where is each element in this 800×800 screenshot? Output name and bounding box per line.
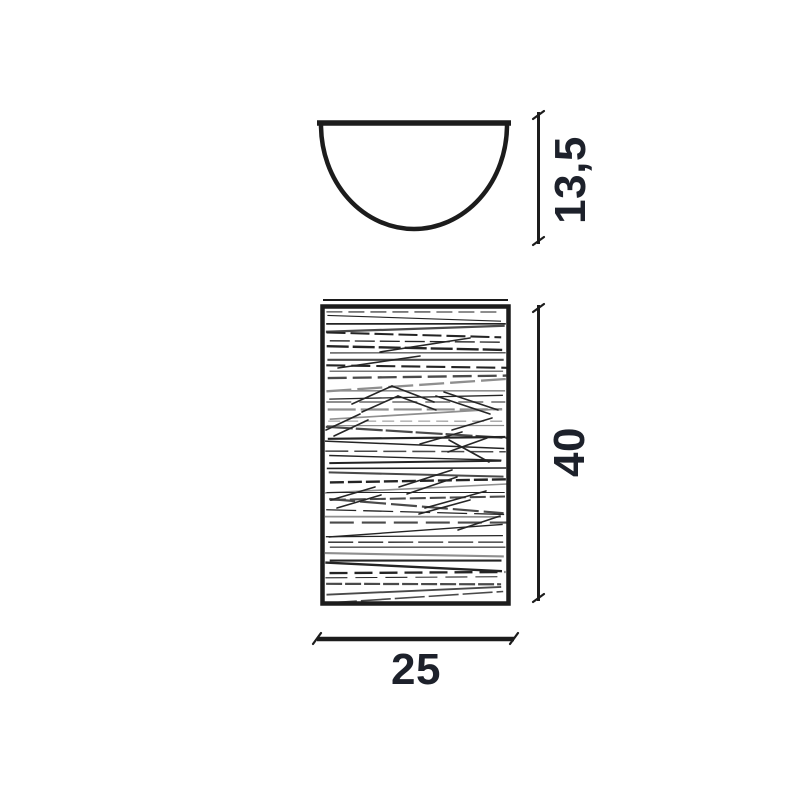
depth-dimension-line: [533, 111, 544, 245]
width-dimension-line: [313, 633, 518, 644]
height-dimension-line: [533, 304, 544, 602]
front-view-panel: [323, 300, 509, 604]
height-dimension-label: 40: [548, 427, 592, 477]
dimension-drawing-canvas: 13,5 40 25: [0, 0, 800, 800]
panel-border: [323, 307, 509, 604]
width-dimension-label: 25: [391, 648, 441, 692]
depth-dimension-label: 13,5: [549, 136, 593, 224]
top-view-bowl-outline: [317, 123, 511, 229]
